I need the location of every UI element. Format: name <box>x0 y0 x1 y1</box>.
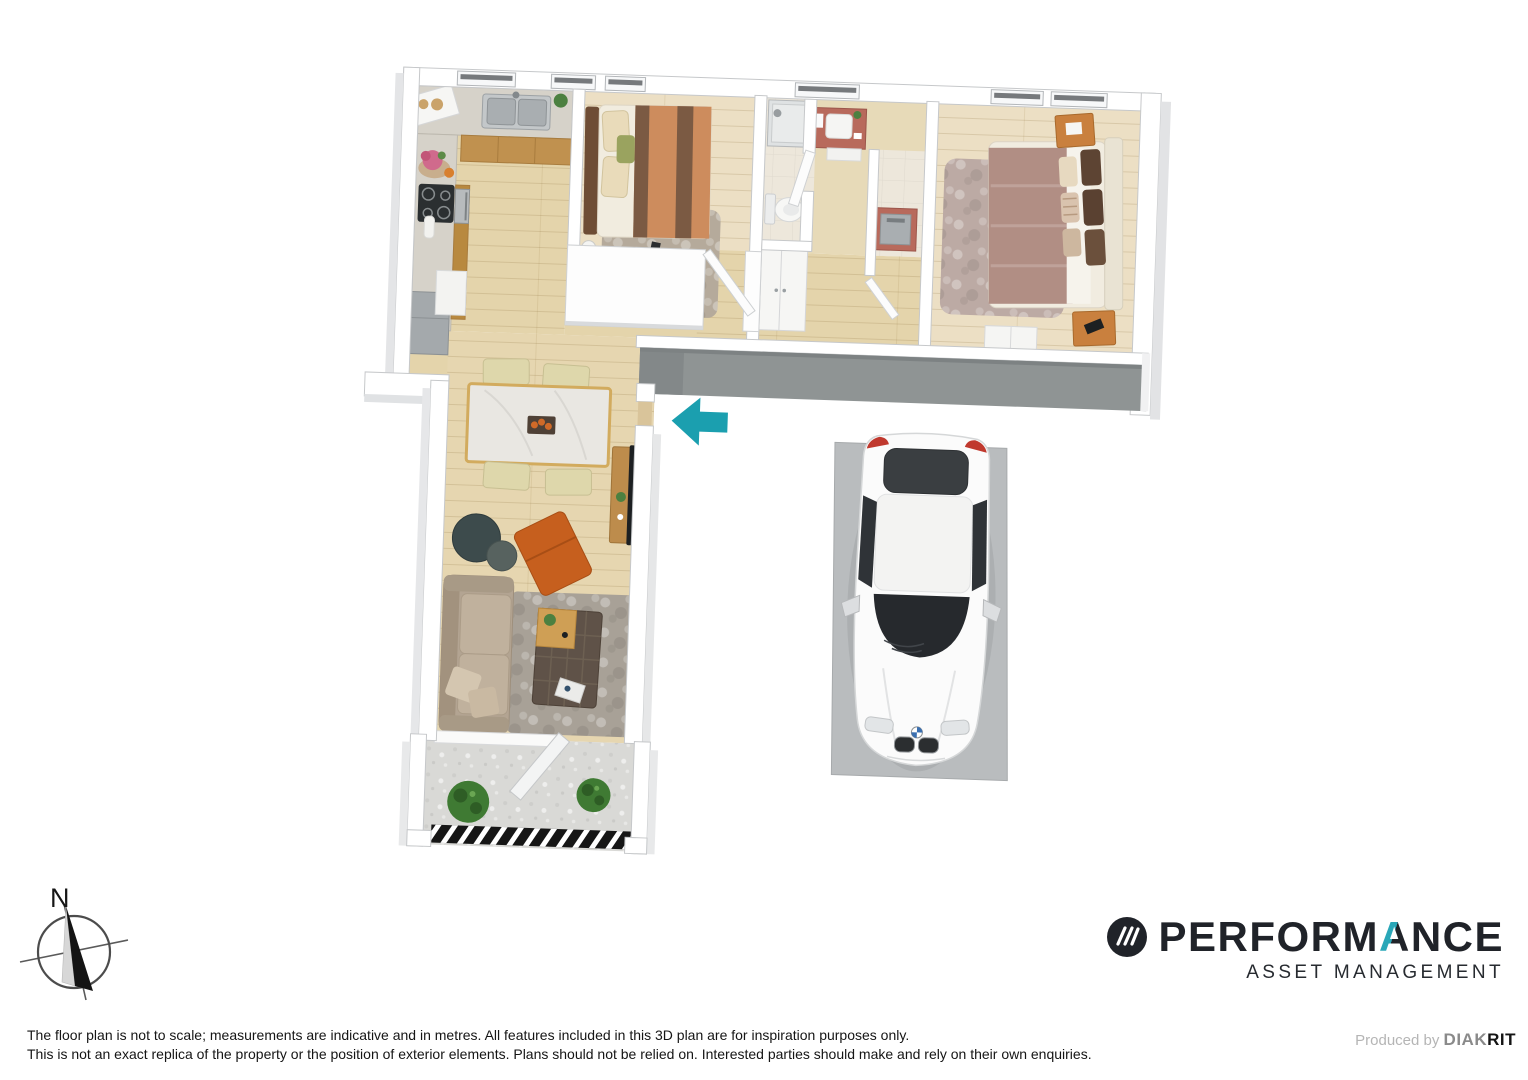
entry-arrow <box>671 397 729 447</box>
nightstand <box>1073 311 1116 346</box>
disclaimer-line-1: The floor plan is not to scale; measurem… <box>27 1026 1092 1045</box>
wooden-tray <box>536 608 577 649</box>
disclaimer-line-2: This is not an exact replica of the prop… <box>27 1045 1092 1064</box>
produced-by: Produced by DIAKRIT <box>1355 1030 1516 1050</box>
disclaimer: The floor plan is not to scale; measurem… <box>27 1026 1092 1063</box>
balcony-bottom-stub <box>625 837 648 854</box>
produced-by-prefix: Produced by <box>1355 1032 1443 1049</box>
bed2-headboard <box>1105 138 1123 310</box>
window <box>457 71 515 87</box>
headlight <box>941 720 970 736</box>
logo-subtitle: ASSET MANAGEMENT <box>1106 962 1504 984</box>
dining-chair <box>545 469 591 495</box>
bed1-duvet-band <box>675 106 693 238</box>
dining-chair <box>483 359 529 385</box>
dining-table <box>466 384 611 467</box>
plan-rotated <box>349 66 1172 871</box>
north-label: N <box>50 883 70 913</box>
wing-east-wall-stub <box>636 383 655 402</box>
window <box>991 90 1043 106</box>
nightstand <box>1055 113 1095 148</box>
bathroom-inner-wall <box>803 99 817 153</box>
vanity <box>809 107 866 149</box>
laundry-trough <box>874 208 917 251</box>
bed1-headboard <box>583 107 599 235</box>
cooktop <box>417 184 454 223</box>
bathroom-south-wall <box>762 240 812 252</box>
vase <box>424 216 435 238</box>
bed-2 <box>989 138 1123 310</box>
bed1-duvet-band <box>633 105 649 237</box>
diakrit-logo-bold: RIT <box>1487 1030 1516 1049</box>
parking-space <box>823 430 1019 780</box>
window <box>605 76 645 91</box>
sofa <box>439 575 514 733</box>
bedroom1-south-wall-stub <box>743 251 762 332</box>
rear-glass-sunroof <box>883 448 968 495</box>
window <box>1051 92 1107 108</box>
kitchen-sink <box>482 90 551 130</box>
corridor-floor-planks <box>697 250 922 346</box>
logo-mark-icon <box>1106 916 1148 958</box>
coffee-table <box>532 608 603 708</box>
bed1-accent-pillow <box>616 135 634 163</box>
grille-kidney <box>918 737 939 753</box>
logo-word-post: NCE <box>1411 913 1504 960</box>
kitchen-island <box>435 270 467 315</box>
sofa-pillow <box>467 686 499 718</box>
entry-threshold <box>637 402 652 426</box>
dining-chair <box>483 461 531 490</box>
balcony-bottom-stub <box>407 830 432 847</box>
logo-wordmark: PERFORMANCE <box>1158 916 1504 958</box>
bed-1 <box>583 105 711 239</box>
window <box>795 83 859 99</box>
logo-accent-letter: A <box>1379 913 1411 960</box>
compass: N <box>20 883 128 1000</box>
performance-logo: PERFORMANCE ASSET MANAGEMENT <box>1106 916 1504 984</box>
vanity-cabinet <box>827 148 861 161</box>
window <box>551 74 595 90</box>
car-roof <box>874 494 973 593</box>
kitchen-cabinets-front <box>461 135 572 165</box>
side-table <box>486 540 517 571</box>
diakrit-logo: DIAK <box>1444 1030 1488 1049</box>
page: N PERFORMANCE ASSET MANAGEMENT Produced … <box>0 0 1528 1080</box>
logo-word-pre: PERFORM <box>1158 913 1379 960</box>
bedroom1-south-wall <box>565 245 706 330</box>
oven <box>454 189 469 223</box>
grille-kidney <box>894 737 915 753</box>
